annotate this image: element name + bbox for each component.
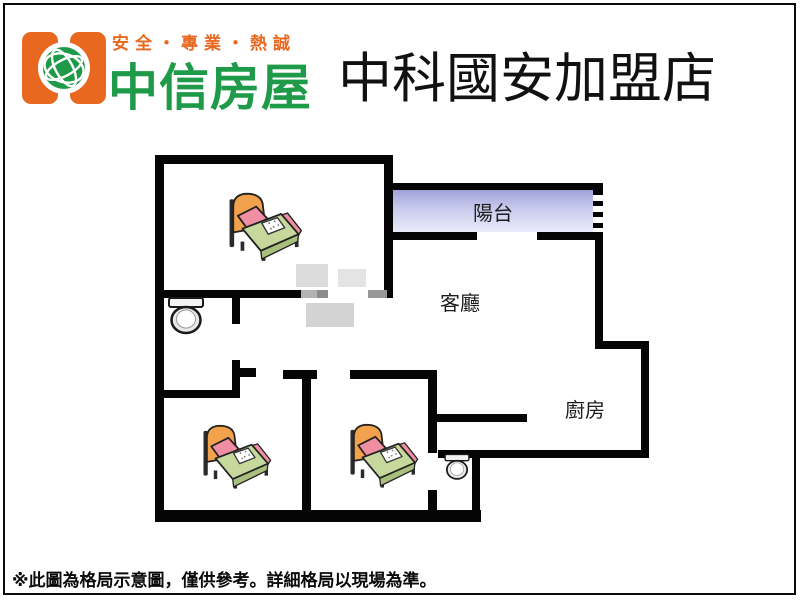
balcony-area: 陽台: [393, 190, 593, 232]
wall: [155, 155, 393, 164]
store-name: 中科國安加盟店: [338, 34, 716, 113]
door-leaf: [301, 290, 317, 298]
wall: [155, 390, 238, 398]
toilet-icon: [443, 451, 471, 483]
wall: [240, 368, 256, 377]
watermark-artifact: [306, 303, 354, 327]
wall: [350, 370, 437, 379]
wall: [435, 414, 527, 422]
wall: [302, 373, 311, 512]
wall: [537, 232, 603, 240]
toilet-icon: [166, 297, 206, 335]
door-leaf: [317, 290, 328, 298]
wall: [283, 370, 317, 379]
bed-icon: [335, 419, 421, 489]
flyer: 安全・專業・熱誠 中信房屋 中科國安加盟店 陽台: [0, 0, 800, 600]
wall: [428, 373, 437, 453]
brand-name: 中信房屋: [108, 48, 312, 120]
chinatrust-logo-icon: [20, 30, 108, 106]
bed-icon: [213, 188, 305, 262]
window-hatch-icon: [593, 190, 603, 232]
disclaimer-text: ※此圖為格局示意圖，僅供參考。詳細格局以現場為準。: [12, 566, 437, 591]
wall: [595, 240, 603, 349]
wall: [384, 155, 393, 298]
watermark-artifact: [296, 264, 328, 287]
door-leaf: [368, 290, 387, 298]
living-room-label: 客廳: [440, 287, 480, 316]
wall: [641, 341, 649, 458]
kitchen-label: 廚房: [565, 394, 605, 423]
wall: [232, 298, 240, 324]
balcony-label: 陽台: [473, 197, 513, 226]
wall: [392, 232, 477, 240]
wall: [155, 510, 481, 522]
wall: [155, 155, 164, 522]
wall: [392, 183, 603, 190]
bed-icon: [188, 420, 274, 490]
watermark-artifact: [338, 269, 366, 287]
